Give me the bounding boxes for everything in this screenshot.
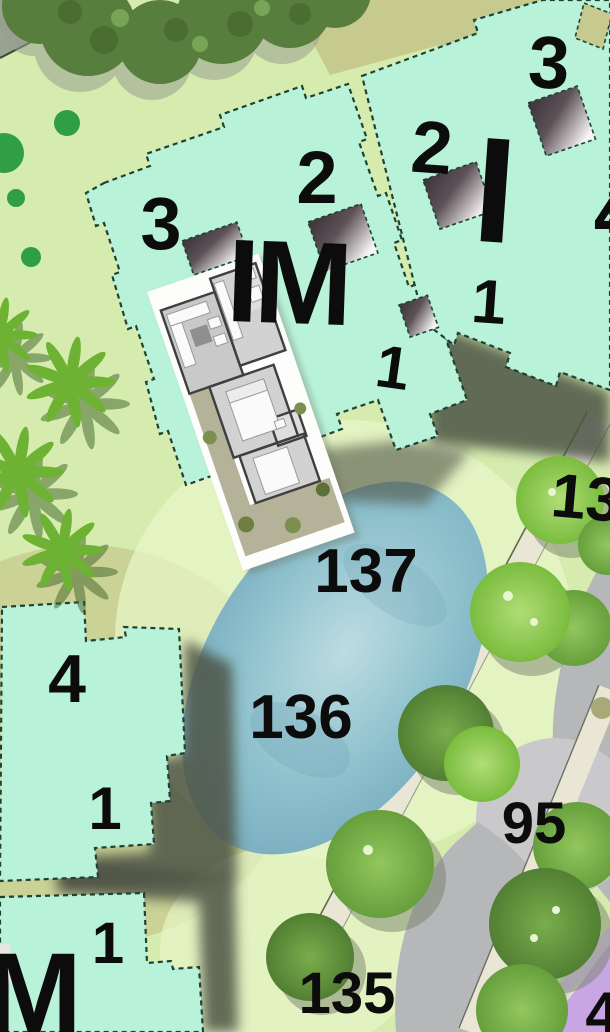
lot-95-label[interactable]: 95	[502, 791, 567, 856]
round-tree-icon	[470, 562, 570, 662]
round-tree-icon	[326, 810, 434, 918]
bush-icon	[54, 110, 80, 136]
building-im-floor2-label[interactable]: 2	[296, 136, 337, 219]
building-m-floor1-label[interactable]: 1	[92, 911, 124, 976]
lot-4-label-partial[interactable]: 4	[585, 980, 610, 1032]
bush-icon	[21, 247, 41, 267]
round-tree-icon	[489, 868, 601, 980]
lot-13-label-partial[interactable]: 13	[549, 461, 610, 536]
building-four-floor1-label[interactable]: 1	[88, 775, 121, 842]
building-four-floor4-label[interactable]: 4	[48, 641, 86, 717]
building-i-floor4-label-partial[interactable]: 4	[594, 168, 610, 257]
lot-137-label[interactable]: 137	[314, 537, 417, 606]
site-master-plan: 3 2 IM 1 2 3 I 1 4 4 1 1 M 137 136 95 13…	[0, 0, 610, 1032]
building-m-name-label[interactable]: M	[0, 930, 82, 1032]
building-i-floor3-label[interactable]: 3	[526, 20, 571, 105]
building-i-floor2-label[interactable]: 2	[409, 105, 456, 191]
bush-icon	[7, 189, 25, 207]
master-plan-canvas: 3 2 IM 1 2 3 I 1 4 4 1 1 M 137 136 95 13…	[0, 0, 610, 1032]
lot-135-label[interactable]: 135	[299, 961, 396, 1026]
building-im-floor3-label[interactable]: 3	[140, 182, 181, 265]
lot-136-label[interactable]: 136	[249, 683, 352, 752]
building-i-floor1-label[interactable]: 1	[469, 267, 508, 338]
building-im-name-label[interactable]: IM	[224, 215, 350, 351]
